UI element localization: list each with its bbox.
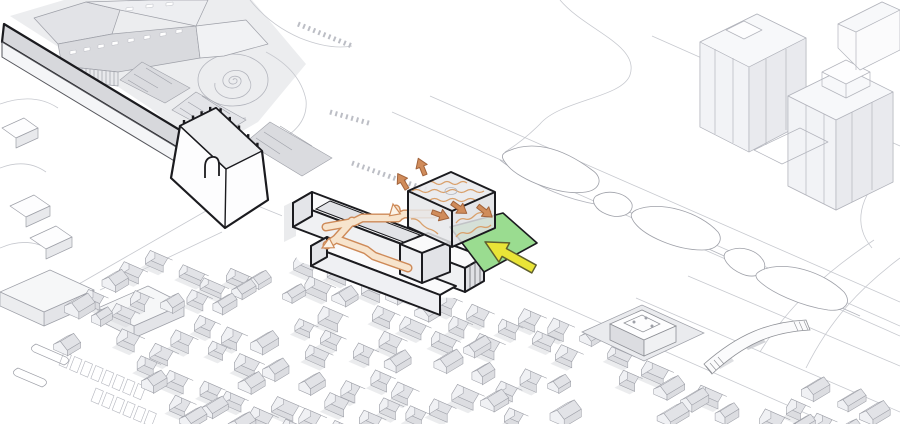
village-house	[615, 370, 643, 394]
village-house	[366, 370, 396, 395]
village-house	[54, 333, 81, 359]
parking-stall	[133, 406, 145, 422]
village-house	[401, 406, 431, 424]
village-house	[548, 374, 571, 396]
lawn-island	[594, 192, 633, 216]
village-house	[447, 385, 485, 414]
village-house	[801, 377, 830, 405]
village-house	[263, 358, 289, 385]
village-house	[283, 284, 306, 307]
crosswalk	[330, 112, 372, 124]
parking-stall	[80, 361, 92, 377]
village-house	[190, 315, 221, 341]
gate-arch	[205, 157, 219, 178]
crosswalk	[298, 24, 352, 46]
village-house	[715, 403, 739, 424]
parking-stall	[91, 388, 103, 404]
village-house	[481, 389, 509, 415]
village-house	[326, 421, 353, 424]
village-house	[657, 402, 689, 424]
parking-stall	[70, 357, 82, 373]
village-house	[313, 306, 349, 335]
village-house	[332, 285, 358, 310]
parking-island	[13, 368, 46, 387]
village-house	[838, 419, 863, 424]
lawn-island	[502, 146, 599, 193]
village-house	[290, 319, 319, 341]
courtyard-complex	[582, 305, 704, 361]
parking-stall	[102, 393, 114, 409]
village-house	[251, 331, 279, 359]
site-axonometric-diagram	[0, 0, 900, 424]
village-house	[513, 309, 547, 336]
parking-stall	[144, 411, 156, 424]
village-house	[349, 343, 380, 368]
gate-tower	[171, 107, 268, 228]
village-house	[102, 269, 128, 295]
parking-stall	[123, 379, 135, 395]
village-house	[141, 251, 173, 276]
village-house	[551, 345, 584, 371]
village-house	[299, 372, 325, 398]
village-house	[550, 400, 581, 424]
village-house	[515, 369, 547, 396]
parking-stall	[91, 366, 103, 382]
residential-towers	[700, 2, 900, 210]
parking-stall	[123, 402, 135, 418]
tower	[838, 2, 900, 70]
parking-stall	[112, 375, 124, 391]
village-house	[859, 401, 890, 424]
village-house	[367, 306, 400, 332]
exhaust-arrow	[413, 156, 431, 177]
parking-stall	[101, 370, 113, 386]
village-house	[500, 408, 529, 424]
street-corner	[0, 164, 46, 172]
lawn-island	[631, 206, 720, 250]
parking-stall	[112, 397, 124, 413]
exhaust-arrow	[393, 170, 413, 192]
left-edge-buildings	[2, 118, 72, 259]
street-corner	[0, 99, 58, 108]
road-curve	[505, 0, 631, 152]
village-house	[472, 363, 495, 388]
village-house	[838, 389, 866, 415]
